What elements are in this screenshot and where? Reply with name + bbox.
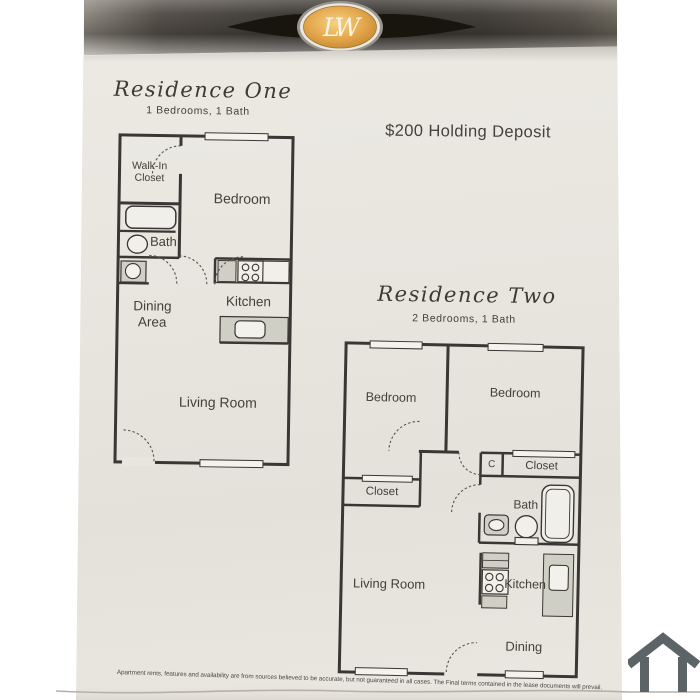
room-label-bedroom-right: Bedroom bbox=[490, 386, 541, 402]
window bbox=[505, 671, 543, 679]
toilet-icon bbox=[515, 515, 539, 544]
door-arcs bbox=[384, 421, 481, 673]
room-label-dining: Dining bbox=[505, 639, 542, 655]
closet-slider bbox=[513, 450, 575, 457]
room-label-closet-left: Closet bbox=[366, 486, 399, 500]
room-label-bath: Bath bbox=[150, 234, 177, 250]
room-label-dining-area: Dining Area bbox=[133, 298, 172, 330]
residence-two-subtitle: 2 Bedrooms, 1 Bath bbox=[412, 312, 516, 325]
entry-door-opening bbox=[122, 457, 155, 467]
entry-door-opening bbox=[444, 667, 477, 678]
floorplan-residence-two: Bedroom Bedroom C Closet Closet Bath Liv… bbox=[336, 340, 587, 690]
room-label-kitchen: Kitchen bbox=[226, 294, 271, 311]
residence-one-title: Residence One bbox=[114, 77, 293, 103]
residence-two-title: Residence Two bbox=[377, 282, 557, 309]
room-label-living-room: Living Room bbox=[353, 575, 426, 592]
room-label-kitchen: Kitchen bbox=[504, 577, 546, 593]
flyer-photo: LW Residence One 1 Bedrooms, 1 Bath $200… bbox=[0, 0, 700, 700]
stove-icon bbox=[238, 261, 263, 282]
room-label-closet-right: Closet bbox=[525, 460, 558, 474]
residence-one-subtitle: 1 Bedrooms, 1 Bath bbox=[146, 104, 250, 117]
room-label-bath: Bath bbox=[513, 497, 538, 512]
house-icon bbox=[628, 626, 700, 698]
counter-icon bbox=[482, 596, 507, 609]
room-label-bedroom: Bedroom bbox=[214, 190, 271, 207]
room-label-bedroom-left: Bedroom bbox=[365, 390, 416, 406]
room-label-walk-in-closet: Walk-In Closet bbox=[132, 160, 168, 185]
window bbox=[370, 341, 422, 349]
header-band: LW bbox=[84, 0, 617, 55]
bathtub-icon bbox=[541, 485, 574, 543]
kitchen-island-icon bbox=[220, 316, 288, 343]
brand-logo: LW bbox=[84, 0, 617, 55]
bathtub-icon bbox=[126, 206, 176, 229]
bath-sink-icon bbox=[484, 515, 508, 535]
logo-monogram: LW bbox=[322, 13, 362, 42]
window bbox=[200, 460, 263, 468]
window bbox=[488, 343, 543, 351]
holding-deposit-text: $200 Holding Deposit bbox=[385, 122, 551, 143]
utility-sink-icon bbox=[121, 261, 146, 282]
fridge-icon bbox=[218, 260, 236, 281]
counter-icon bbox=[263, 261, 289, 282]
window bbox=[205, 133, 268, 141]
paper-edge-line bbox=[0, 680, 700, 700]
floorplan-residence-one: Walk-In Closet Bedroom Bath Dining Area … bbox=[112, 131, 297, 479]
room-label-closet-c: C bbox=[488, 459, 495, 471]
room-label-living-room: Living Room bbox=[179, 394, 257, 412]
kitchen-counter-icon bbox=[482, 553, 508, 569]
window bbox=[355, 668, 407, 676]
closet-slider bbox=[362, 475, 412, 482]
fridge-icon bbox=[542, 554, 573, 617]
toilet-icon bbox=[127, 235, 147, 253]
